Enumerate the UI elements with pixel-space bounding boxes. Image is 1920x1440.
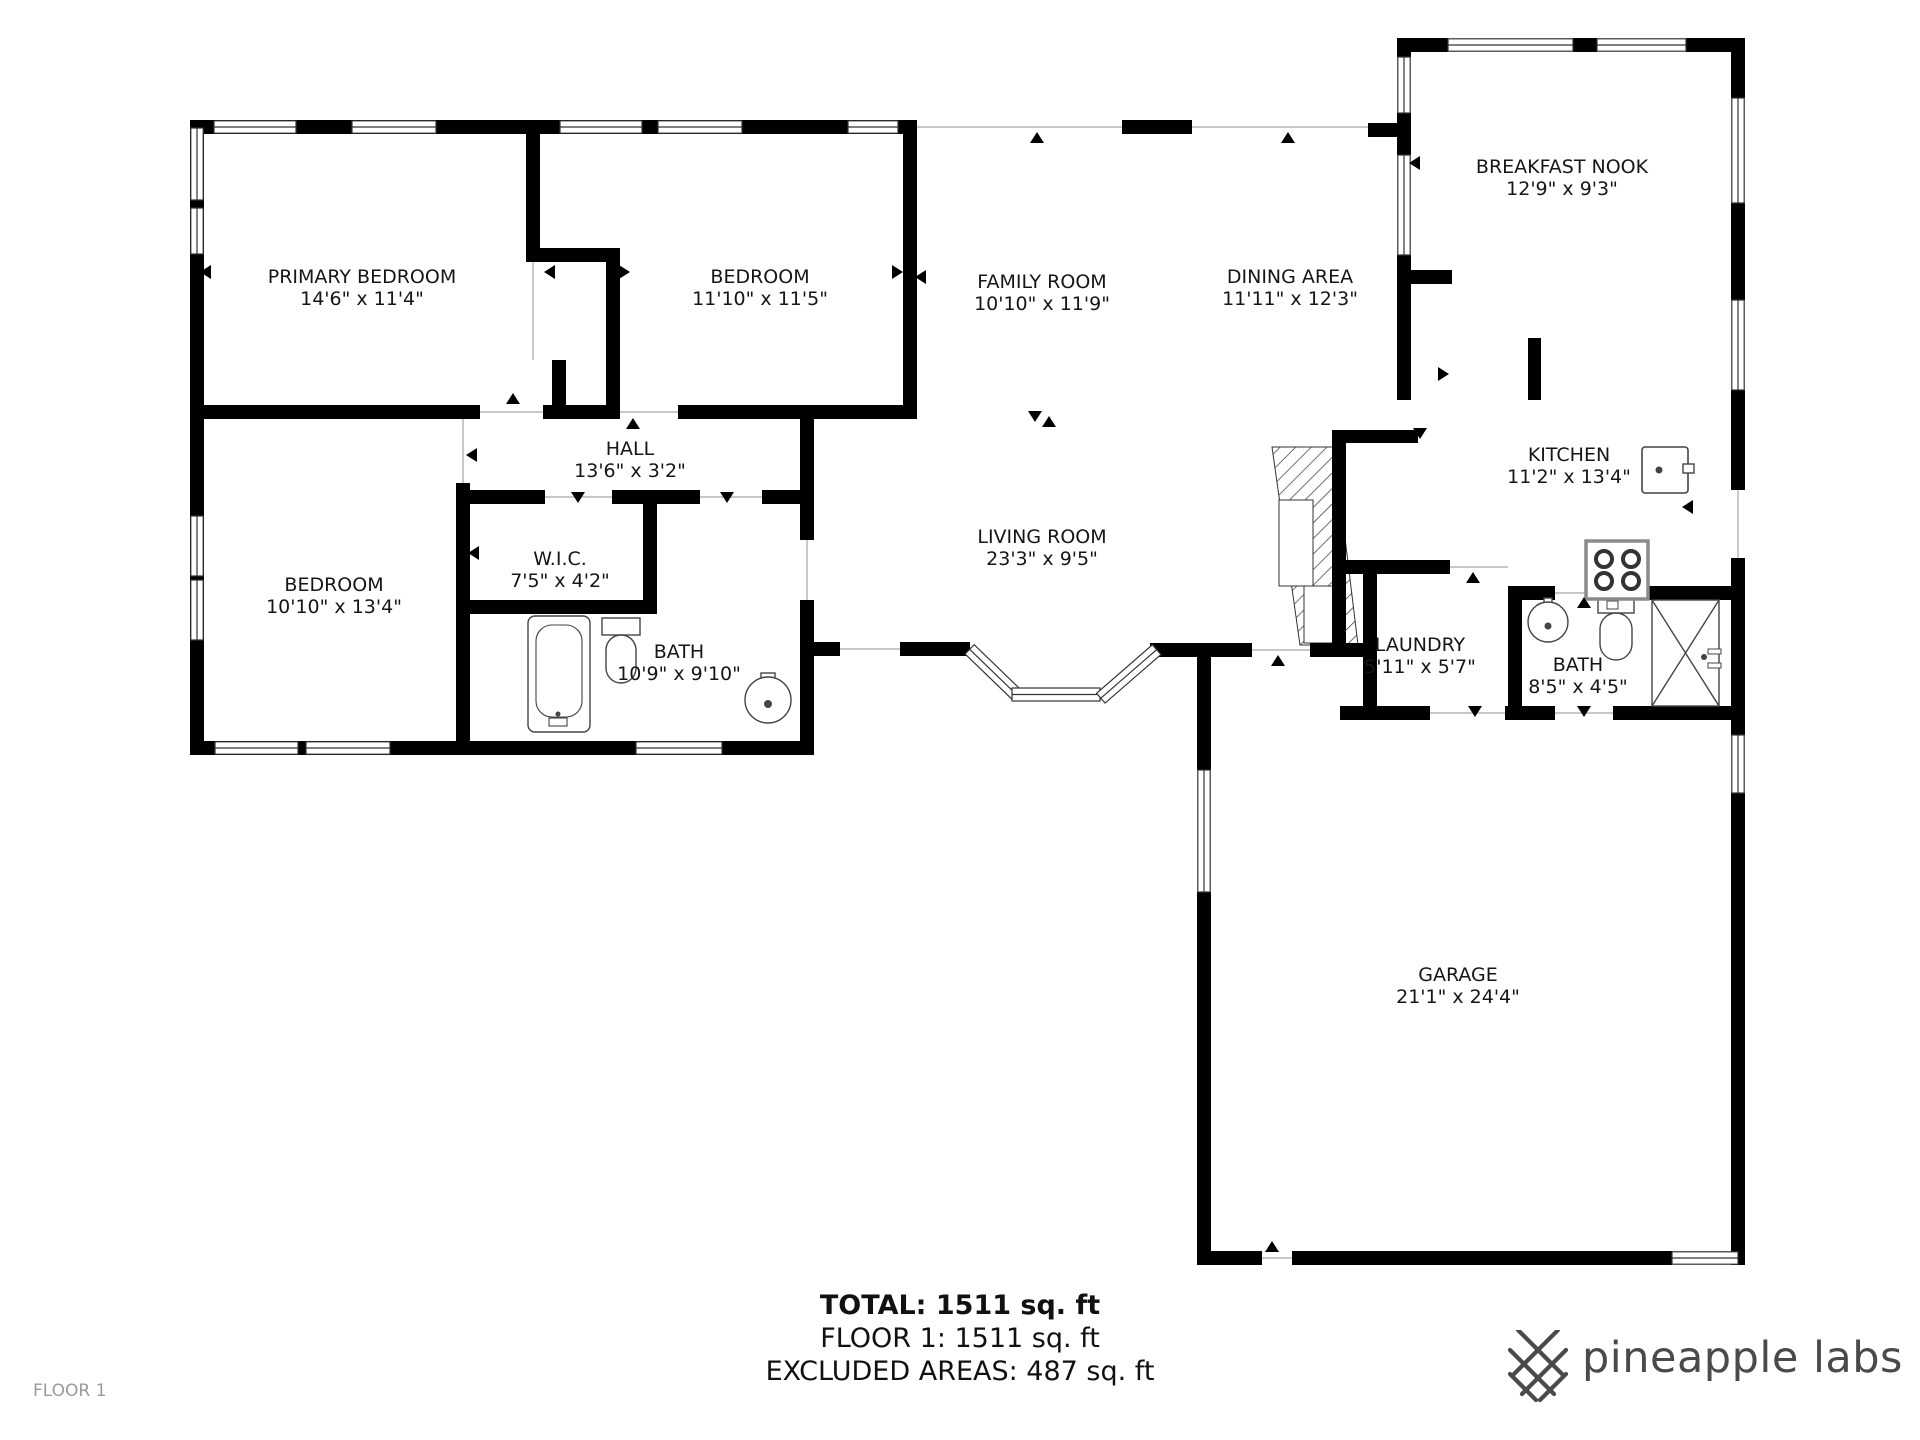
room-label-primary-bedroom: PRIMARY BEDROOM 14'6" x 11'4" — [268, 266, 456, 310]
room-name: PRIMARY BEDROOM — [268, 266, 456, 288]
pineapple-lattice-icon — [1508, 1330, 1568, 1404]
room-name: BEDROOM — [692, 266, 828, 288]
room-name: BATH — [617, 641, 741, 663]
room-name: BREAKFAST NOOK — [1476, 156, 1648, 178]
room-dims: 12'9" x 9'3" — [1476, 178, 1648, 200]
room-name: GARAGE — [1396, 964, 1520, 986]
room-dims: 10'10" x 13'4" — [266, 596, 402, 618]
room-dims: 13'6" x 3'2" — [574, 460, 686, 482]
room-label-laundry: LAUNDRY 5'11" x 5'7" — [1364, 634, 1476, 678]
room-name: BATH — [1528, 654, 1628, 676]
room-label-bath-left: BATH 10'9" x 9'10" — [617, 641, 741, 685]
sink-icon-left — [745, 673, 791, 723]
toilet-icon-right — [1598, 598, 1634, 660]
room-label-living-room: LIVING ROOM 23'3" x 9'5" — [977, 526, 1106, 570]
floor-label: FLOOR 1 — [33, 1381, 106, 1401]
room-label-wic: W.I.C. 7'5" x 4'2" — [510, 548, 610, 592]
room-dims: 11'2" x 13'4" — [1507, 466, 1631, 488]
room-label-kitchen: KITCHEN 11'2" x 13'4" — [1507, 444, 1631, 488]
room-dims: 23'3" x 9'5" — [977, 548, 1106, 570]
room-label-bedroom-left: BEDROOM 10'10" x 13'4" — [266, 574, 402, 618]
room-label-garage: GARAGE 21'1" x 24'4" — [1396, 964, 1520, 1008]
room-name: DINING AREA — [1222, 266, 1358, 288]
bathtub-icon — [528, 616, 590, 732]
room-dims: 11'10" x 11'5" — [692, 288, 828, 310]
room-name: LAUNDRY — [1364, 634, 1476, 656]
room-dims: 10'10" x 11'9" — [974, 293, 1110, 315]
logo-text: pineapple labs — [1582, 1330, 1903, 1386]
fridge-icon — [1642, 447, 1694, 493]
total-area-text: TOTAL: 1511 sq. ft — [0, 1290, 1920, 1321]
bay-window — [965, 645, 1161, 703]
room-dims: 21'1" x 24'4" — [1396, 986, 1520, 1008]
room-label-breakfast-nook: BREAKFAST NOOK 12'9" x 9'3" — [1476, 156, 1648, 200]
shower-icon — [1652, 600, 1721, 706]
room-name: BEDROOM — [266, 574, 402, 596]
room-name: W.I.C. — [510, 548, 610, 570]
stove-icon — [1586, 541, 1648, 599]
room-label-bath-right: BATH 8'5" x 4'5" — [1528, 654, 1628, 698]
room-dims: 8'5" x 4'5" — [1528, 676, 1628, 698]
room-label-hall: HALL 13'6" x 3'2" — [574, 438, 686, 482]
room-name: LIVING ROOM — [977, 526, 1106, 548]
sink-icon-right — [1528, 598, 1568, 642]
room-dims: 5'11" x 5'7" — [1364, 656, 1476, 678]
floorplan-page: PRIMARY BEDROOM 14'6" x 11'4" BEDROOM 11… — [0, 0, 1920, 1440]
room-dims: 11'11" x 12'3" — [1222, 288, 1358, 310]
room-dims: 7'5" x 4'2" — [510, 570, 610, 592]
room-label-bedroom-top: BEDROOM 11'10" x 11'5" — [692, 266, 828, 310]
room-name: HALL — [574, 438, 686, 460]
logo: pineapple labs — [1508, 1330, 1903, 1404]
room-dims: 14'6" x 11'4" — [268, 288, 456, 310]
room-label-dining-area: DINING AREA 11'11" x 12'3" — [1222, 266, 1358, 310]
floorplan-canvas — [0, 0, 1920, 1440]
room-dims: 10'9" x 9'10" — [617, 663, 741, 685]
room-name: KITCHEN — [1507, 444, 1631, 466]
room-label-family-room: FAMILY ROOM 10'10" x 11'9" — [974, 271, 1110, 315]
room-name: FAMILY ROOM — [974, 271, 1110, 293]
